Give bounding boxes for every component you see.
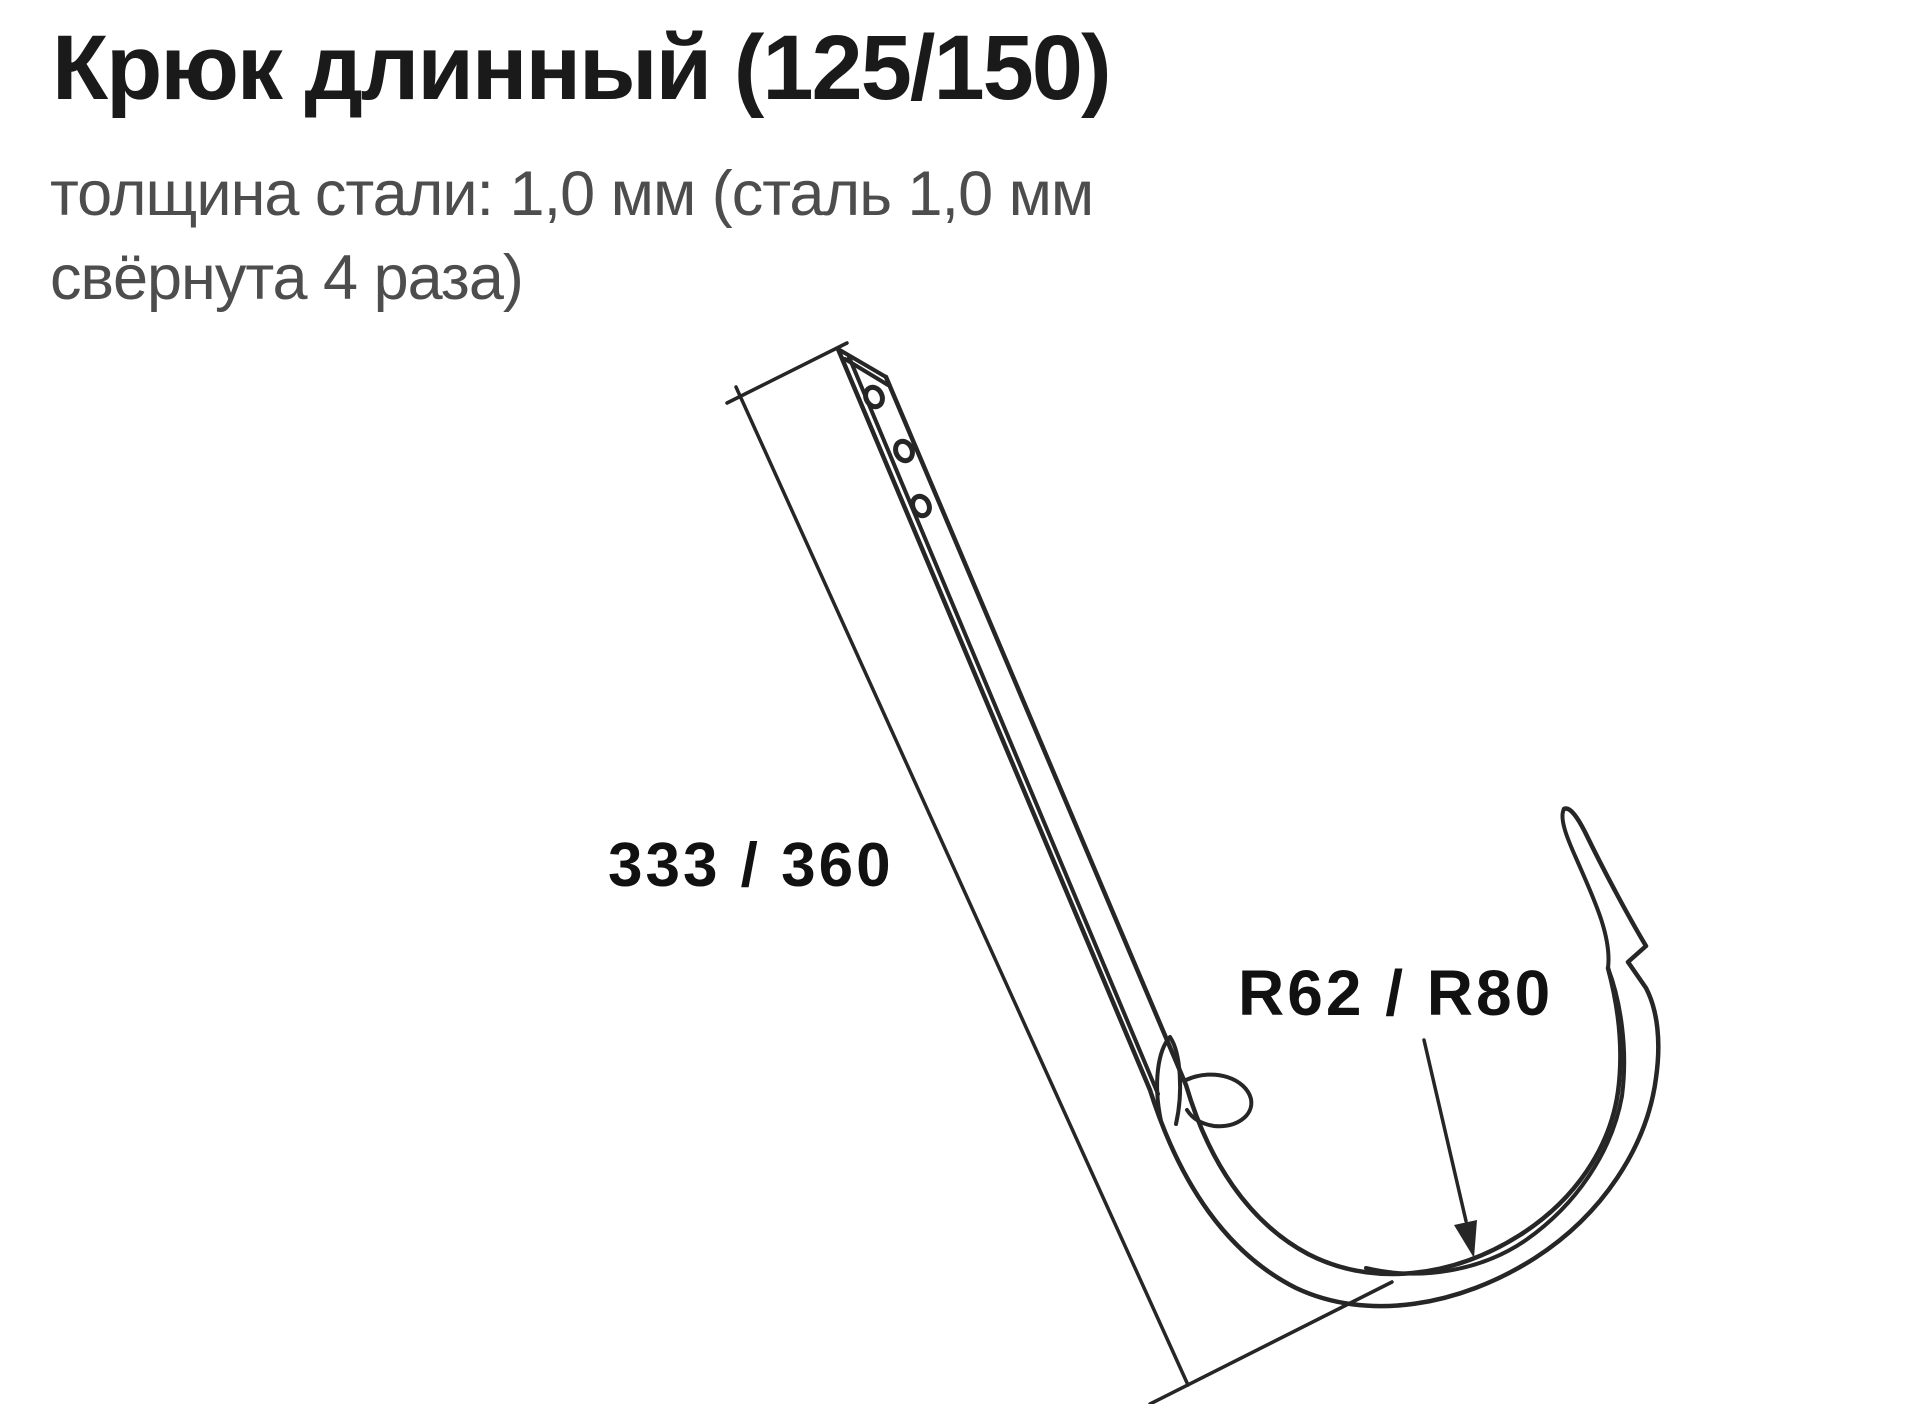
snap-tab-leaf (1157, 1037, 1180, 1124)
strap-fold-thickness-line (849, 357, 1158, 1094)
technical-drawing (0, 0, 1920, 1404)
length-dimension-label: 333 / 360 (608, 830, 894, 901)
mounting-hole-icon (862, 385, 885, 410)
extension-line-bottom (1150, 1282, 1392, 1404)
radius-arrow-line (1424, 1040, 1466, 1221)
page-background: Крюк длинный (125/150) толщина стали: 1,… (0, 0, 1920, 1404)
snap-tab-flap (1186, 1075, 1251, 1127)
extension-line-top (727, 343, 847, 403)
mounting-hole-icon (909, 494, 932, 519)
hook-strap (838, 349, 1658, 1306)
strap-right-edge-and-bowl-inner (886, 377, 1620, 1274)
radius-dimension-label: R62 / R80 (1238, 956, 1553, 1030)
tip-hairpin-and-band-line (1366, 809, 1624, 1274)
radius-arrowhead-icon (1454, 1220, 1477, 1258)
strap-outer-edge-and-bowl-outer (838, 349, 1658, 1306)
